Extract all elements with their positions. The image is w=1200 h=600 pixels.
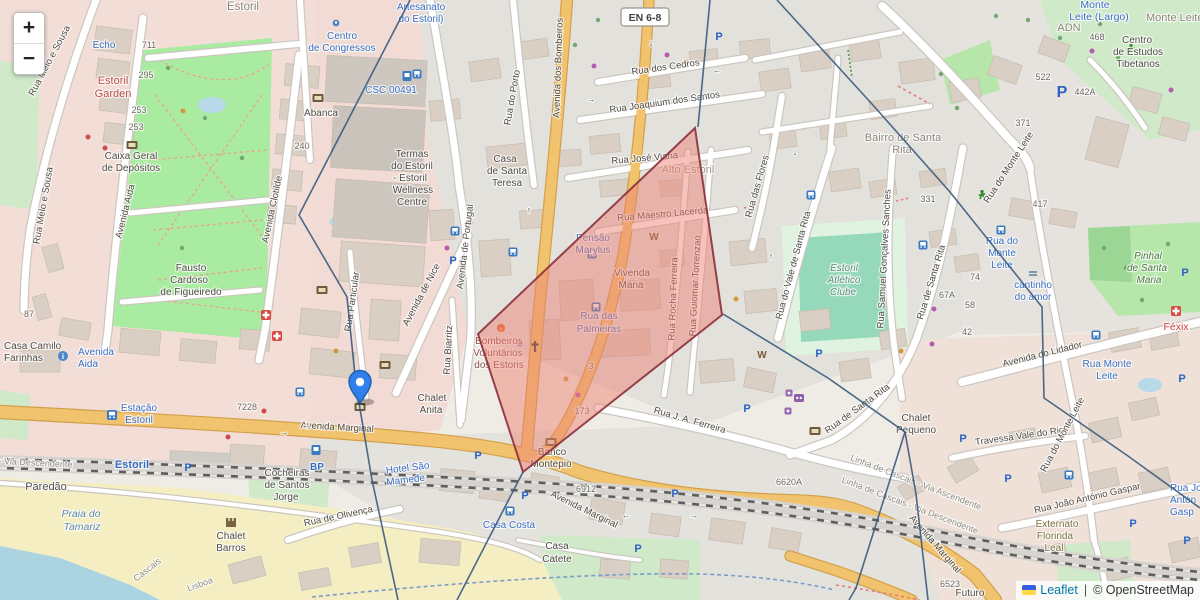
building <box>759 68 791 92</box>
map-label: 67A <box>939 290 955 300</box>
bus-icon-part <box>998 227 1004 231</box>
map-label: Centro <box>327 31 357 42</box>
map-label: - Estoril <box>393 173 427 184</box>
parking-icon-glyph: P <box>1057 84 1068 101</box>
map-label: 6912 <box>576 484 596 494</box>
bus-icon-part <box>301 393 303 395</box>
cart-icon <box>785 408 792 415</box>
map-label: 468 <box>1089 32 1104 42</box>
map-label: Leal <box>1045 543 1064 554</box>
map-label: Externato <box>1036 519 1079 530</box>
atm-icon <box>380 361 391 369</box>
map-label: Jorge <box>273 492 298 503</box>
tree-icon <box>1166 242 1170 246</box>
map-label: Gasp <box>1170 507 1194 518</box>
parking-icon: P <box>1129 518 1136 530</box>
bus-icon <box>509 248 518 257</box>
theatre-icon-part <box>794 394 804 402</box>
building <box>709 518 746 545</box>
bus-icon-part <box>1070 476 1072 478</box>
parking-icon: P <box>671 488 678 500</box>
map-label: Cardoso <box>170 275 208 286</box>
tree-icon <box>180 246 184 250</box>
poi-dot-icon <box>1169 88 1174 93</box>
building <box>699 359 735 384</box>
map-label: cantinho <box>1014 280 1052 291</box>
building <box>229 444 264 466</box>
map-label: Monte <box>1080 0 1109 11</box>
atm-icon <box>313 94 324 102</box>
bus-icon-part <box>510 253 512 255</box>
map-label: Estoril <box>98 75 129 87</box>
parking-icon-glyph: P <box>743 403 750 415</box>
map-label: → <box>587 94 596 104</box>
train-icon <box>107 410 117 420</box>
cart-icon <box>786 390 793 397</box>
cart-icon-part <box>788 392 791 395</box>
building <box>519 38 549 60</box>
ukraine-flag-icon <box>1022 585 1036 595</box>
bus-icon-part <box>414 75 416 77</box>
castle-icon-part <box>230 518 232 521</box>
map-label: de Figueiredo <box>160 287 222 298</box>
map-label: Tibetanos <box>1116 59 1160 70</box>
bus-icon-part <box>808 196 810 198</box>
bus-icon-part <box>452 228 458 232</box>
map-label: Garden <box>95 88 132 100</box>
map-label: Chalet <box>418 393 447 404</box>
map-label: de Estudos <box>1113 47 1163 58</box>
leaflet-link[interactable]: Leaflet <box>1040 583 1078 597</box>
tree-icon <box>994 14 998 18</box>
map-label: 253 <box>128 122 143 132</box>
fountain-icon <box>333 20 340 27</box>
hospital-icon <box>272 331 282 341</box>
fuel-icon <box>312 445 321 455</box>
bus-icon-part <box>456 232 458 234</box>
poi-dot-icon <box>1090 49 1095 54</box>
building <box>419 538 461 565</box>
zoom-control: + − <box>13 12 45 75</box>
map-label: de Santos <box>264 480 309 491</box>
map-label: Estoril <box>115 459 149 471</box>
map-label: ↓ <box>793 147 798 157</box>
map-label: ↓ <box>649 38 654 48</box>
pub-icon: W <box>757 350 767 361</box>
castle-icon <box>226 518 236 527</box>
cart-icon-part <box>787 410 790 413</box>
building <box>729 238 767 266</box>
map-label: Echo <box>93 40 116 51</box>
map-label: 331 <box>920 194 935 204</box>
map-label: Centre <box>397 197 427 208</box>
building <box>659 559 688 579</box>
building <box>119 328 161 355</box>
tree-icon <box>1140 298 1144 302</box>
parking-icon: P <box>474 450 481 462</box>
bus-icon-part <box>1066 472 1072 476</box>
marker-pin-hole <box>356 378 364 386</box>
map-label: Rua do <box>986 236 1019 247</box>
map-label: 7228 <box>237 402 257 412</box>
map-label: ↑ <box>527 205 532 215</box>
atm-icon <box>127 141 138 149</box>
bus-icon-part <box>414 71 420 75</box>
map-label: 253 <box>131 105 146 115</box>
bus-icon-part <box>510 249 516 253</box>
building <box>369 299 402 341</box>
parking-icon-glyph: P <box>1004 473 1011 485</box>
bus-icon-part <box>808 192 814 196</box>
atm-icon <box>317 286 328 294</box>
parking-icon-glyph: P <box>634 543 641 555</box>
bus-icon <box>451 227 460 236</box>
map-label: de Depósitos <box>102 163 160 174</box>
map-label: Féxix <box>1163 321 1189 333</box>
pond <box>1138 378 1162 392</box>
map-label: ← <box>302 420 311 430</box>
map-label: Leite <box>991 260 1013 271</box>
zoom-in-button[interactable]: + <box>14 13 44 44</box>
bus-icon-part <box>1093 332 1099 336</box>
bus-icon <box>413 70 422 79</box>
map-label: Wellness <box>393 185 433 196</box>
building <box>899 58 936 85</box>
map-label: de Santa <box>487 166 527 177</box>
map-label: Teresa <box>492 178 522 189</box>
map-label: Estoril <box>125 415 153 426</box>
parking-icon-glyph: P <box>1178 373 1185 385</box>
bus-icon-part <box>507 512 509 514</box>
bus-icon-part <box>297 393 299 395</box>
map-label: Tamariz <box>64 521 102 533</box>
map-label: 371 <box>1015 118 1030 128</box>
map-label: ADN <box>1057 22 1080 34</box>
map-label: 417 <box>1032 199 1047 209</box>
bus-icon-part <box>511 512 513 514</box>
map-label: 442A <box>1074 87 1095 97</box>
road-shield-label: EN 6-8 <box>629 12 662 24</box>
parking-icon-glyph: P <box>1129 518 1136 530</box>
atm-icon <box>810 427 821 435</box>
tree-icon <box>240 156 244 160</box>
osm-attribution: © OpenStreetMap <box>1093 583 1194 597</box>
map-label: → <box>280 427 289 437</box>
bus-icon-part <box>297 389 303 393</box>
tree-icon <box>1058 36 1062 40</box>
theatre-icon-part <box>796 397 798 399</box>
map-label: Paredão <box>25 481 67 493</box>
bus-icon-part <box>418 75 420 77</box>
bus-icon-part <box>1066 476 1068 478</box>
parking-icon: P <box>1181 267 1188 279</box>
bus-icon-part <box>507 508 513 512</box>
bus-icon <box>296 388 305 397</box>
map-label: Centro <box>1122 35 1152 46</box>
bus-icon <box>997 226 1006 235</box>
parking-icon-glyph: P <box>449 255 456 267</box>
map-label: 58 <box>965 300 975 310</box>
building <box>325 55 427 106</box>
map-label: Estoril <box>830 263 859 274</box>
map-label: Abanca <box>304 108 338 119</box>
map-label: Aida <box>78 359 98 370</box>
hospital-icon-part <box>1173 310 1180 312</box>
map-label: Futuro <box>956 588 985 599</box>
building <box>954 253 980 272</box>
pond <box>198 97 226 113</box>
bus-icon-part <box>1093 336 1095 338</box>
map-label: Estação <box>121 403 158 414</box>
map-label: 522 <box>1035 72 1050 82</box>
fountain-icon-part <box>335 21 337 23</box>
tree-icon <box>939 72 943 76</box>
tree-icon <box>1026 18 1030 22</box>
parking-icon: P <box>959 433 966 445</box>
map-label: Praia do <box>61 508 100 520</box>
map-label: Termas <box>396 149 429 160</box>
atm-icon-part <box>812 429 819 433</box>
map-label: Caixa Geral <box>105 151 158 162</box>
building <box>479 239 511 277</box>
bus-icon-part <box>920 242 926 246</box>
map-label: ← <box>622 510 631 520</box>
map-label: do amor <box>1015 292 1052 303</box>
ev-icon-part <box>405 73 410 77</box>
building <box>744 288 778 313</box>
map-label: → <box>690 510 699 520</box>
building <box>309 348 355 378</box>
map-label: Casa <box>493 154 517 165</box>
parking-icon-glyph: P <box>184 462 191 474</box>
map-label: Leite <box>1096 371 1118 382</box>
tree-icon <box>596 18 600 22</box>
poi-dot-icon <box>103 146 108 151</box>
poi-dot-icon <box>86 135 91 140</box>
poi-dot-icon <box>262 409 267 414</box>
tree-icon <box>955 106 959 110</box>
map-label: Avenida <box>78 347 114 358</box>
map-label: de Santa <box>1127 263 1167 274</box>
bus-icon-part <box>452 232 454 234</box>
building <box>839 358 871 382</box>
map-label: CSC 00491 <box>365 85 417 96</box>
bus-icon <box>506 507 515 516</box>
tree-icon <box>166 66 170 70</box>
attribution-separator: | <box>1084 583 1087 597</box>
map-label: Bairro de Santa <box>865 132 942 144</box>
parking-icon-glyph: P <box>521 490 528 502</box>
info-icon-glyph: i <box>62 352 64 361</box>
map-label: Anita <box>420 405 443 416</box>
map-label: 6620A <box>776 477 802 487</box>
parking-icon: P <box>1004 473 1011 485</box>
poi-dot-icon <box>334 349 339 354</box>
poi-dot-icon <box>932 307 937 312</box>
map-label: Maria <box>1136 275 1161 286</box>
building <box>799 308 831 331</box>
parking-icon: P <box>815 348 822 360</box>
map-label: Chalet <box>217 531 246 542</box>
poi-dot-icon <box>665 53 670 58</box>
parking-icon: P <box>1057 84 1068 101</box>
map-label: Farinhas <box>4 353 43 364</box>
building <box>649 513 681 537</box>
building <box>429 209 455 241</box>
map-label: Rua Jo <box>1170 483 1200 494</box>
map-label: Chalet <box>902 413 931 424</box>
parking-icon-glyph: P <box>1183 535 1190 547</box>
map-label: 711 <box>142 40 156 50</box>
bus-icon-part <box>1002 231 1004 233</box>
hospital-icon <box>1171 306 1181 316</box>
road-shield: EN 6-8 <box>621 8 669 26</box>
map-label: Monte Leite <box>1146 12 1200 24</box>
map-label: BP <box>310 462 324 473</box>
building <box>179 338 217 363</box>
parking-icon: P <box>715 31 722 43</box>
map-label: de Congressos <box>308 43 375 54</box>
building <box>469 58 501 82</box>
map-label: 74 <box>970 272 980 282</box>
bus-icon-part <box>924 246 926 248</box>
bus-icon-part <box>1097 336 1099 338</box>
parking-icon: P <box>521 490 528 502</box>
map-label: 6523 <box>940 579 960 589</box>
train-icon-part <box>113 416 115 418</box>
tree-icon <box>1102 246 1106 250</box>
map-label: Fausto <box>176 263 207 274</box>
bus-icon <box>919 241 928 250</box>
bus-icon-part <box>920 246 922 248</box>
bus-icon <box>1092 331 1101 340</box>
parking-icon: P <box>743 403 750 415</box>
map-label: Casa Camilo <box>4 341 62 352</box>
bus-icon-part <box>514 253 516 255</box>
hospital-icon-part <box>274 335 281 337</box>
parking-icon: P <box>1178 373 1185 385</box>
parking-icon: P <box>449 255 456 267</box>
poi-dot-icon <box>181 109 186 114</box>
parking-icon: P <box>634 543 641 555</box>
poi-dot-icon <box>734 297 739 302</box>
map-label: Florinda <box>1037 531 1074 542</box>
map-label: Atlético <box>827 275 861 286</box>
atm-icon-part <box>315 96 322 100</box>
map-label: Clube <box>830 287 857 298</box>
poi-dot-icon <box>226 435 231 440</box>
bus-icon-part <box>812 196 814 198</box>
building <box>589 133 621 154</box>
theatre-icon <box>794 394 804 402</box>
tree-icon <box>203 116 207 120</box>
building <box>599 559 630 580</box>
theatre-icon-part <box>800 397 802 399</box>
attribution-bar: Leaflet | © OpenStreetMap <box>1016 581 1200 600</box>
hospital-icon-part <box>263 314 270 316</box>
bus-icon <box>1065 471 1074 480</box>
poi-dot-icon <box>899 349 904 354</box>
map-label: Barros <box>216 543 245 554</box>
parking-icon-glyph: P <box>959 433 966 445</box>
map-label: Casa Costa <box>483 520 536 531</box>
parking-icon-glyph: P <box>715 31 722 43</box>
building <box>829 168 861 192</box>
castle-icon-part <box>226 518 228 521</box>
map-label: do Estoril <box>391 161 433 172</box>
poi-dot-icon <box>930 342 935 347</box>
map-label: Pinhal <box>1134 251 1163 262</box>
map-label: do Estoril) <box>398 14 443 25</box>
map-label: 42 <box>962 327 972 337</box>
map-label: Estoril <box>227 1 259 13</box>
parking-icon-glyph: P <box>671 488 678 500</box>
map-tiles: PPPPPPPPPPPPPPPPiWWEN 6-8Rua Melo e Sous… <box>0 0 1200 600</box>
parking-icon-glyph: P <box>1181 267 1188 279</box>
map-label: ← <box>713 65 722 75</box>
atm-icon-part <box>129 143 136 147</box>
ev-icon <box>403 71 412 81</box>
parking-icon: P <box>1183 535 1190 547</box>
parking-icon-glyph: P <box>474 450 481 462</box>
train-icon-part <box>109 412 115 416</box>
castle-icon-part <box>234 518 236 521</box>
info-icon: i <box>58 351 68 361</box>
pub-icon-glyph: W <box>757 350 767 361</box>
map-label: Cocheiras <box>264 468 309 479</box>
bus-icon-part <box>998 231 1000 233</box>
map-label: 87 <box>24 309 34 319</box>
atm-icon-part <box>382 363 389 367</box>
hospital-icon <box>261 310 271 320</box>
map-label: Casa <box>545 541 569 552</box>
map-canvas[interactable]: PPPPPPPPPPPPPPPPiWWEN 6-8Rua Melo e Sous… <box>0 0 1200 600</box>
map-label: Catete <box>542 554 572 565</box>
poi-dot-icon <box>592 64 597 69</box>
poi-dot-icon <box>445 246 450 251</box>
bus-icon <box>807 191 816 200</box>
train-icon-part <box>109 416 111 418</box>
parking-icon-glyph: P <box>815 348 822 360</box>
parking-icon: P <box>184 462 191 474</box>
atm-icon-part <box>319 288 326 292</box>
zoom-out-button[interactable]: − <box>14 44 44 74</box>
map-label: 240 <box>294 141 309 151</box>
map-label: Rua Monte <box>1083 359 1132 370</box>
area-wood-pinhal-dark <box>1088 226 1132 282</box>
building <box>299 308 341 338</box>
tree-icon <box>573 43 577 47</box>
fuel-icon-part <box>314 447 319 451</box>
castle-icon-part <box>226 521 236 527</box>
map-label: 295 <box>138 70 153 80</box>
map-label: ↑ <box>769 251 774 261</box>
